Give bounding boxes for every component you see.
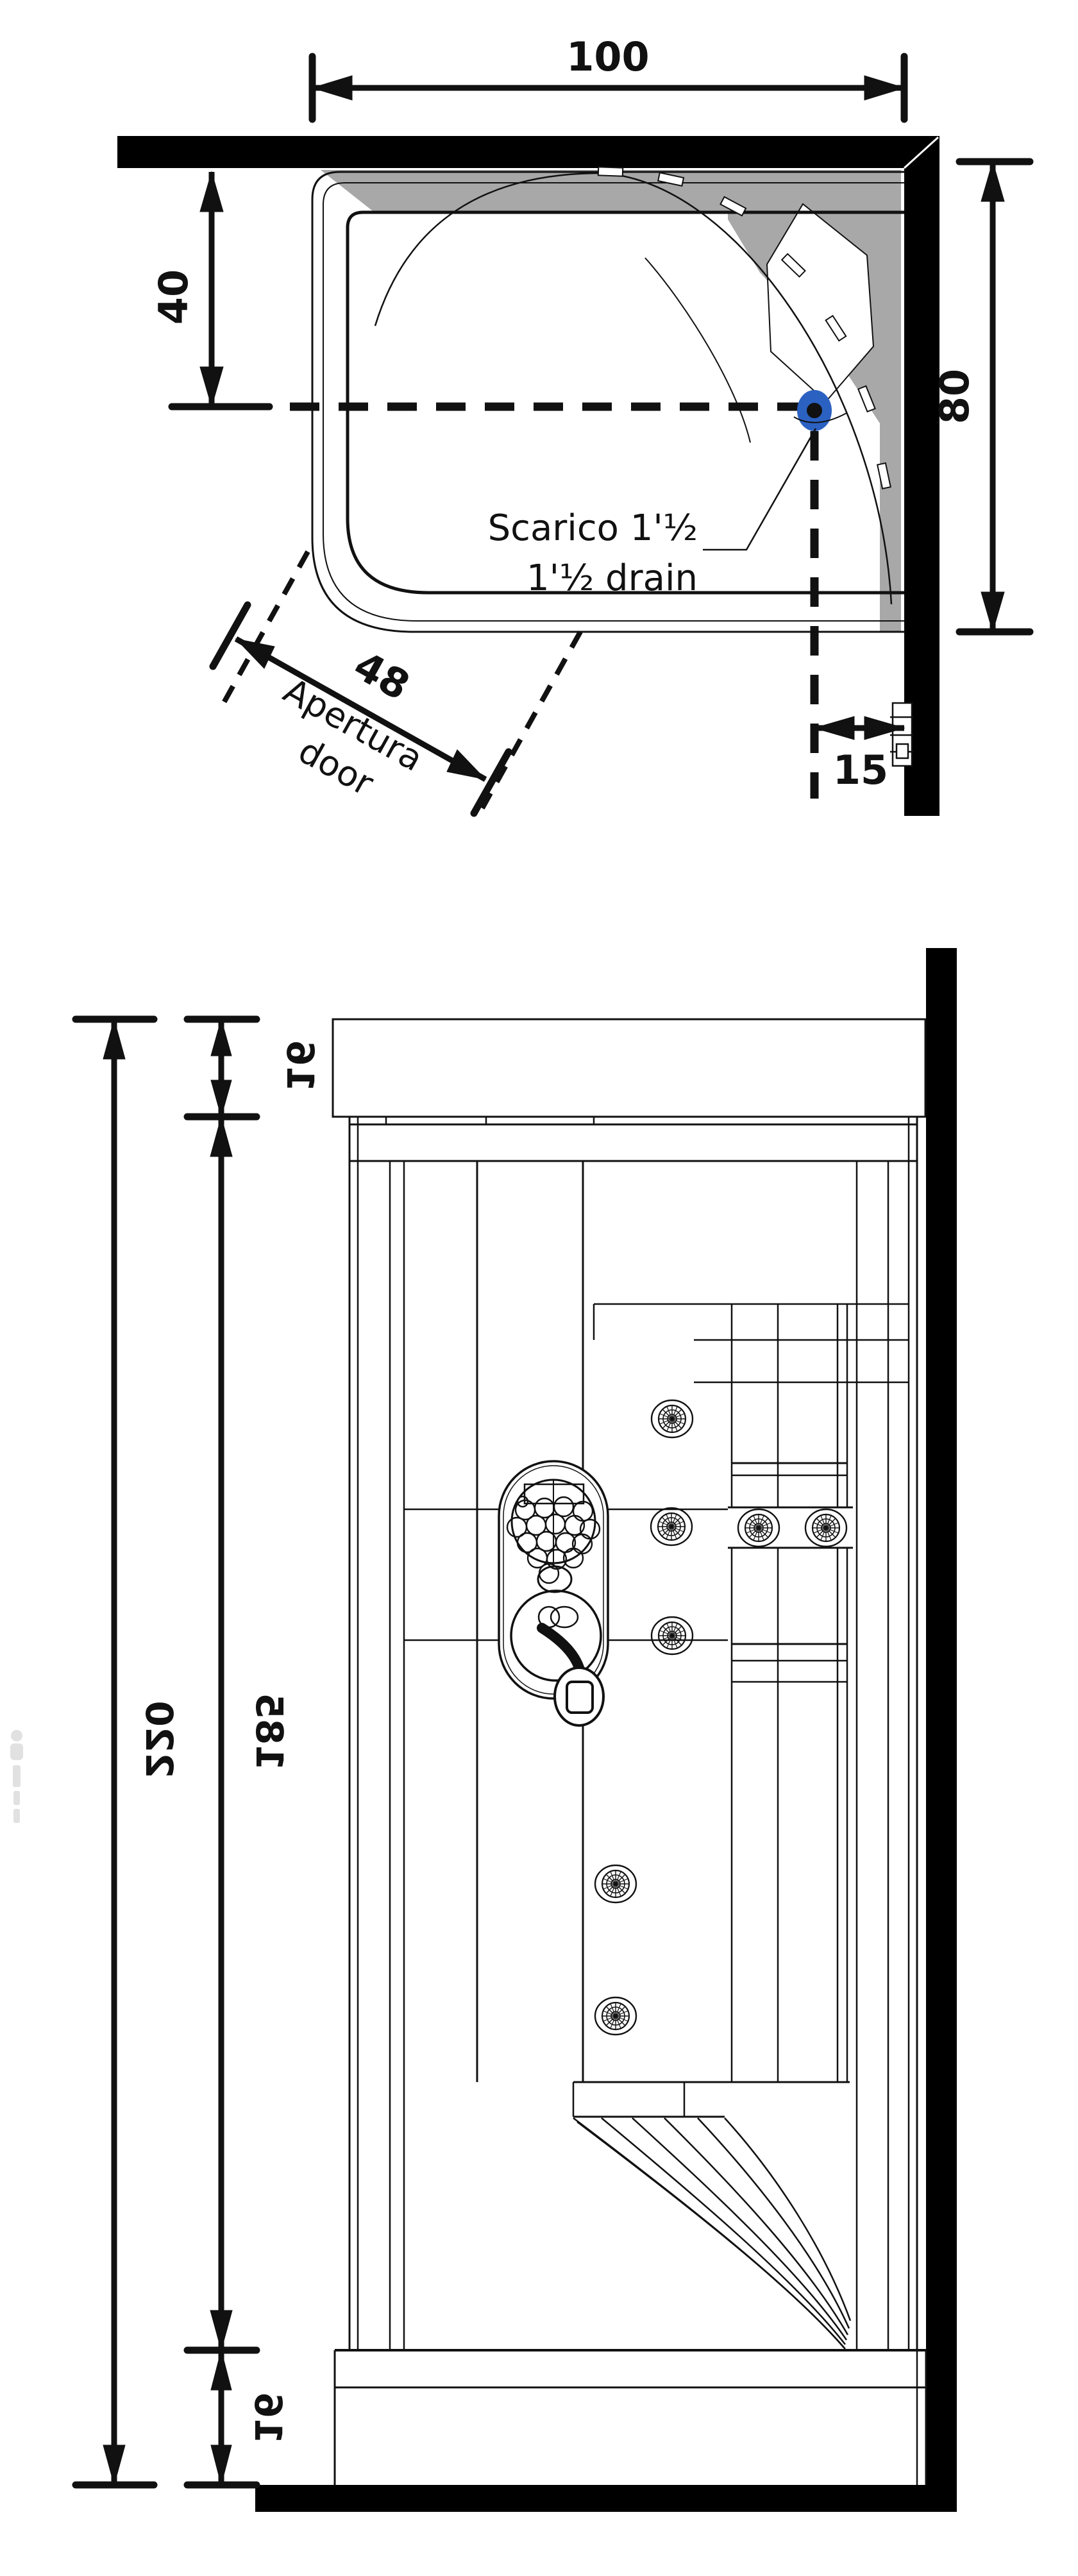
wall-bracket — [890, 703, 913, 766]
dim-body-185-label: 185 — [248, 1693, 291, 1770]
drain-note-line2: 1'½ drain — [526, 557, 698, 599]
roof-box — [333, 1019, 925, 1117]
dim-door-48: 48 Apertura door — [213, 605, 509, 813]
mixer-lever-loop-hole — [567, 1682, 593, 1713]
jet-mid-lower — [652, 1617, 693, 1654]
cabin-structure — [333, 1019, 926, 2485]
plan-view: 100 40 80 15 — [117, 33, 1030, 816]
door-projection-right-dashed — [482, 632, 580, 808]
door-inner-arc — [645, 258, 750, 443]
jet-band-right — [805, 1509, 846, 1546]
dim-door-label: 48 — [346, 641, 417, 709]
drain-dot-core — [807, 403, 822, 418]
shower-cabin-technical-drawing: 100 40 80 15 — [0, 0, 1078, 2576]
drain-callout: Scarico 1'½ 1'½ drain — [488, 428, 816, 599]
dim-total-height-label: 220 — [137, 1700, 181, 1778]
dim-body-185: 185 — [187, 1117, 291, 2350]
drawing-page: 100 40 80 15 — [0, 0, 1078, 2576]
elevation-walls — [255, 948, 957, 2512]
wall-top — [117, 136, 939, 168]
dim-drain-wall-label: 15 — [833, 747, 888, 793]
elevation-view: 220 16 185 16 — [10, 948, 957, 2512]
dim-top-16-label: 16 — [278, 1040, 322, 1092]
dim-bottom-16: 16 — [187, 2350, 290, 2485]
jet-top — [652, 1400, 693, 1437]
jet-low-1 — [595, 1865, 636, 1902]
dim-drain-offset-label: 40 — [150, 269, 197, 325]
drain-marker — [794, 390, 846, 431]
dim-width-100: 100 — [312, 33, 904, 119]
dim-total-height-220: 220 — [76, 1019, 181, 2485]
wall-right-elevation — [926, 948, 957, 2511]
drain-leader-line — [703, 428, 816, 550]
jet-low-2 — [595, 1997, 636, 2035]
jet-mid-left — [651, 1508, 692, 1545]
dim-drain-wall-15: 15 — [814, 716, 904, 793]
dim-top-16: 16 — [187, 1019, 322, 1117]
dim-depth-80: 80 — [931, 162, 1030, 632]
dim-depth-label: 80 — [931, 369, 978, 424]
watermark — [10, 1730, 23, 1823]
body-jets — [595, 1400, 846, 2035]
dim-bottom-16-label: 16 — [246, 2393, 290, 2445]
dim-width-label: 100 — [566, 33, 649, 80]
control-panel — [499, 1461, 608, 1725]
dim-drain-offset-40: 40 — [150, 172, 269, 407]
jet-band-left — [738, 1509, 779, 1546]
drain-note-line1: Scarico 1'½ — [488, 507, 698, 549]
floor-bar — [255, 2485, 957, 2512]
